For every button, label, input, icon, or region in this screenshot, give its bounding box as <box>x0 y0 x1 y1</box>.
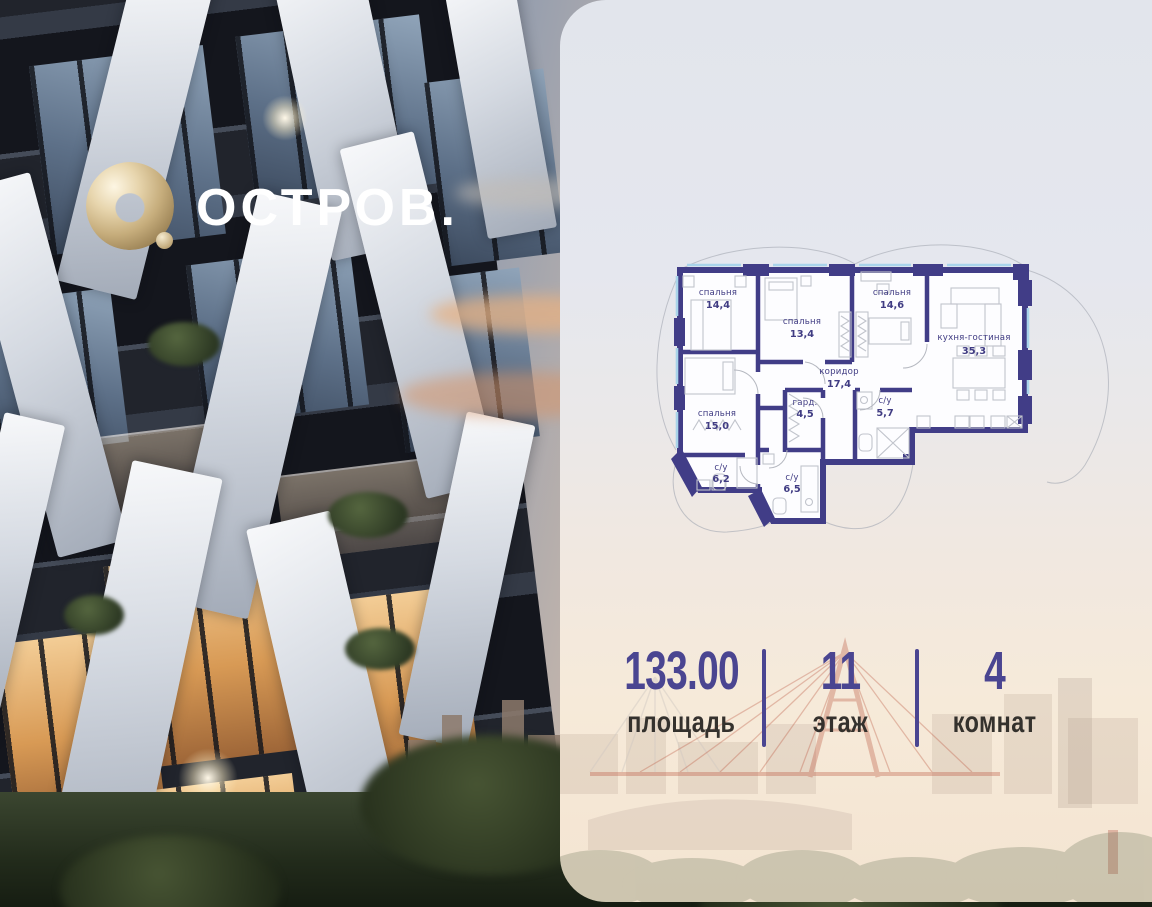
room-area-label: 35,3 <box>962 346 986 357</box>
area-value: 133.00 <box>624 646 739 697</box>
room-name-label: спальня <box>783 317 821 327</box>
floor-label: этаж <box>813 706 868 740</box>
apartment-stats: 133.00 площадь 11 этаж 4 комнат <box>600 646 1070 747</box>
room-name-label: кухня-гостиная <box>937 333 1010 343</box>
room-area-label: 17,4 <box>827 379 851 390</box>
room-area-label: 14,4 <box>706 300 730 311</box>
balcony-plant <box>328 492 408 538</box>
room-name-label: спальня <box>699 288 737 298</box>
balcony-plant <box>345 628 415 670</box>
room-area-label: 15,0 <box>705 421 729 432</box>
room-area-label: 14,6 <box>880 300 904 311</box>
floor-value: 11 <box>821 646 861 697</box>
info-card: спальня 14,4 спальня 13,4 спальня 14,6 к… <box>560 0 1152 902</box>
rooms-label: комнат <box>953 706 1037 740</box>
room-area-label: 13,4 <box>790 329 814 340</box>
room-area-label: 4,5 <box>796 409 814 420</box>
room-name-label: с/у <box>714 463 727 473</box>
room-name-label: спальня <box>873 288 911 298</box>
room-area-label: 6,2 <box>712 474 729 485</box>
logo-dot-icon <box>156 232 173 249</box>
stat-floor: 11 этаж <box>766 646 915 740</box>
stat-rooms: 4 комнат <box>919 646 1070 740</box>
room-name-label: спальня <box>698 409 736 419</box>
stat-area: 133.00 площадь <box>600 646 762 740</box>
room-area-label: 6,5 <box>783 484 801 495</box>
room-area-label: 5,7 <box>876 408 894 419</box>
real-estate-card: ОСТРОВ. <box>0 0 1152 907</box>
room-name-label: коридор <box>819 367 859 377</box>
floor-plan: спальня 14,4 спальня 13,4 спальня 14,6 к… <box>655 240 1152 550</box>
room-name-label: гард. <box>793 398 818 408</box>
brand-name: ОСТРОВ. <box>196 178 459 238</box>
room-name-label: с/у <box>878 396 891 406</box>
area-label: площадь <box>627 706 735 740</box>
rooms-value: 4 <box>984 646 1005 697</box>
balcony-plant <box>148 322 220 366</box>
brand-logo: ОСТРОВ. <box>86 162 556 258</box>
balcony-plant <box>64 595 124 635</box>
room-name-label: с/у <box>785 473 798 483</box>
sun-glint <box>262 95 308 141</box>
